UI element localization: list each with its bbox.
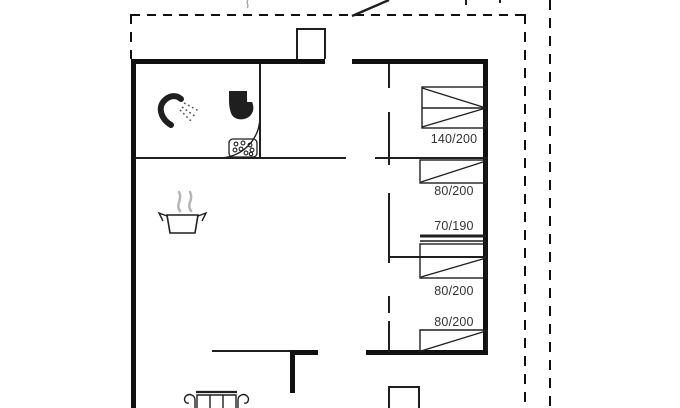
north-arrow-fragment (352, 0, 389, 16)
double-bed (422, 87, 486, 128)
floor-plan: 140/200 80/200 70/190 80/200 80/200 (0, 0, 680, 408)
shower-tray-icon (219, 117, 260, 158)
steam-fragment (247, 0, 248, 8)
single-bed-2 (420, 330, 487, 352)
shower-icon (161, 96, 199, 125)
cooking-pot-icon (159, 192, 206, 233)
floor-plan-lineart (0, 0, 680, 408)
sofa-icon (185, 392, 249, 408)
bunk-bed (420, 236, 486, 278)
toilet-icon (229, 91, 253, 119)
single-bed-1 (420, 160, 486, 183)
